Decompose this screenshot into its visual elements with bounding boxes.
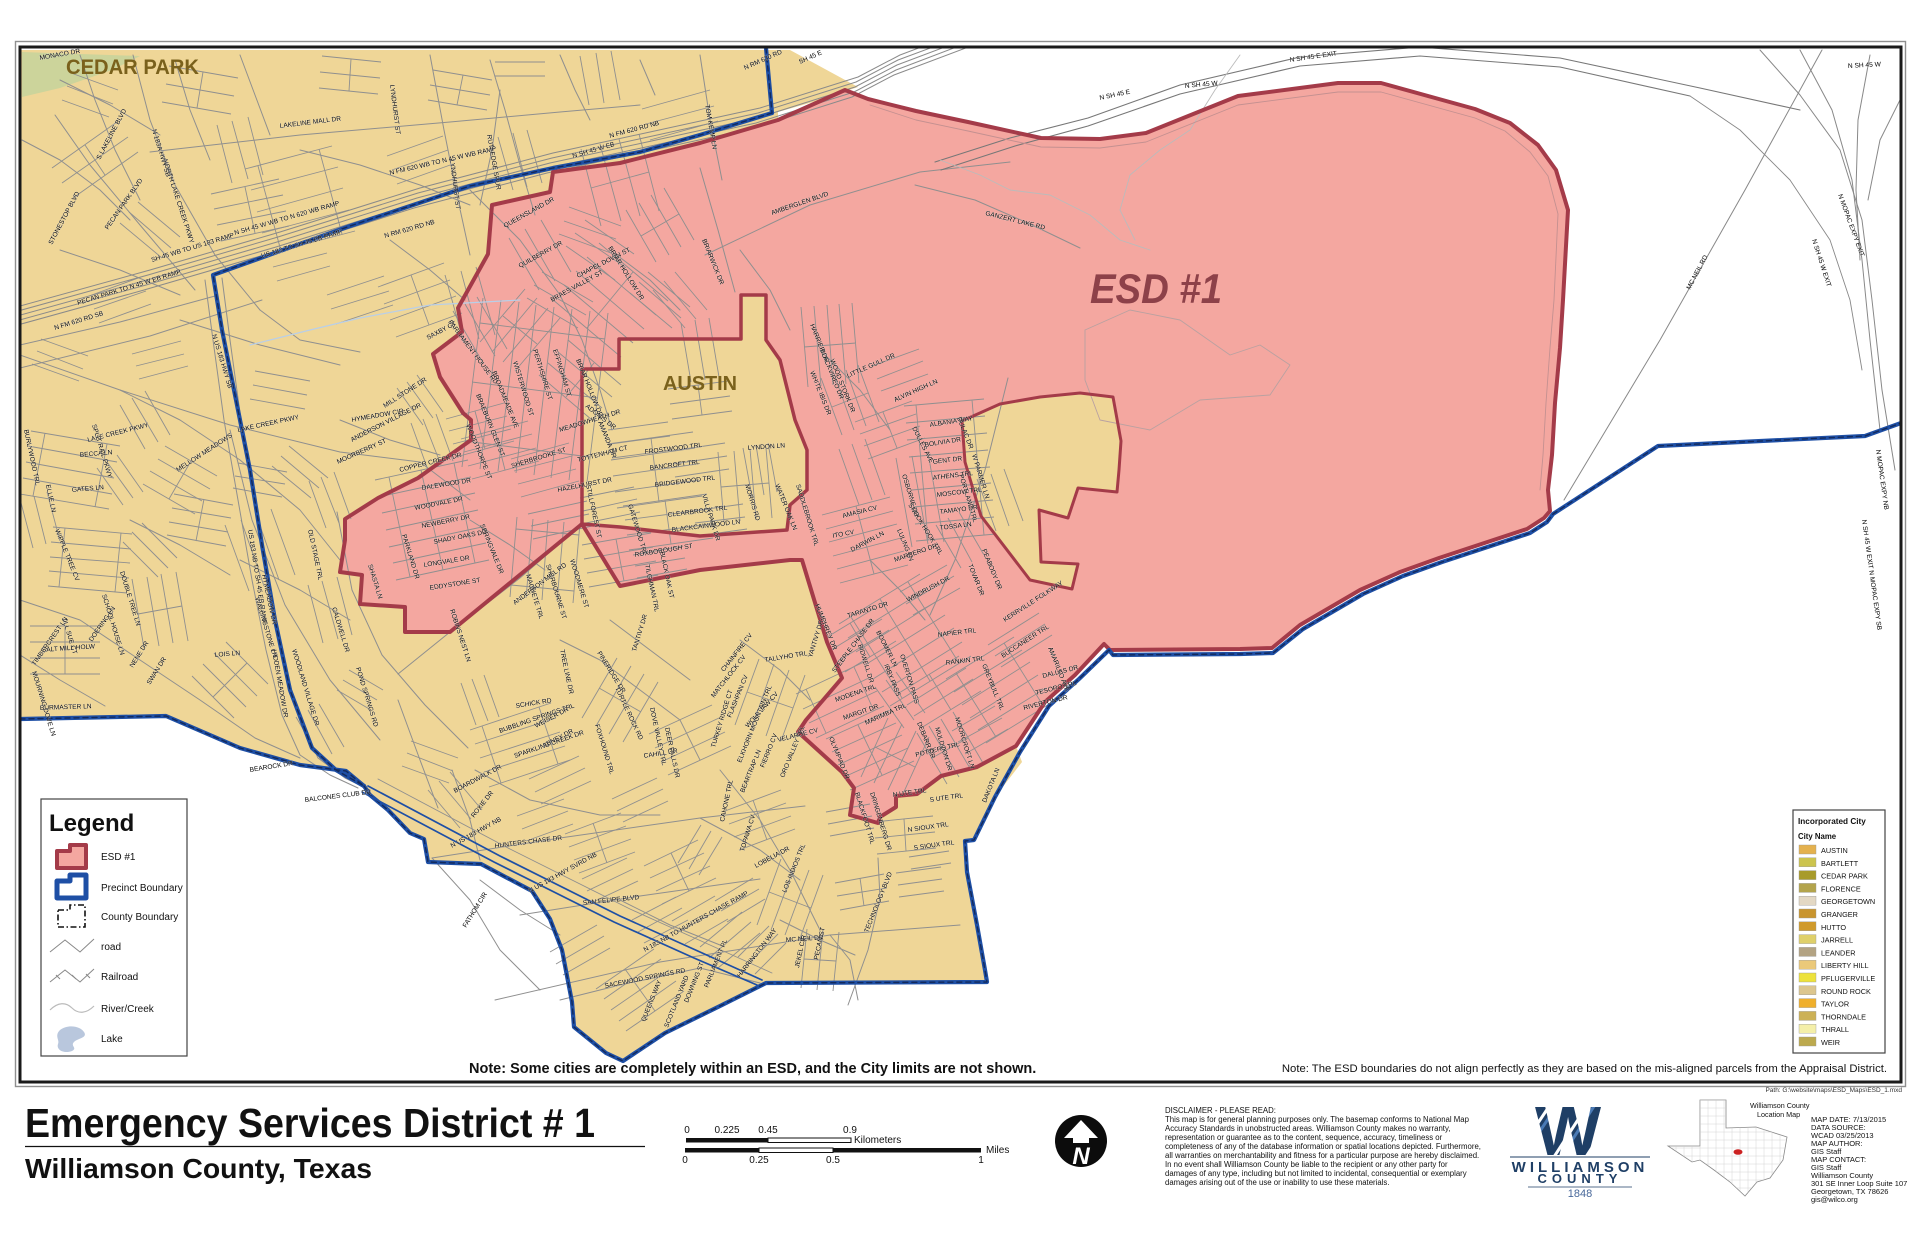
svg-text:HUTTO: HUTTO: [1821, 923, 1846, 932]
svg-text:WEIR: WEIR: [1821, 1038, 1840, 1047]
svg-text:THRALL: THRALL: [1821, 1025, 1849, 1034]
svg-text:gis@wilco.org: gis@wilco.org: [1811, 1195, 1858, 1204]
svg-text:LEANDER: LEANDER: [1821, 948, 1855, 957]
svg-text:Location Map: Location Map: [1757, 1110, 1800, 1119]
svg-text:1848: 1848: [1568, 1188, 1592, 1200]
svg-text:COUNTY: COUNTY: [1538, 1171, 1623, 1186]
svg-text:ESD #1: ESD #1: [1090, 265, 1222, 312]
svg-text:Precinct Boundary: Precinct Boundary: [101, 883, 183, 894]
svg-text:County Boundary: County Boundary: [101, 912, 178, 923]
svg-text:0.25: 0.25: [749, 1155, 769, 1166]
svg-text:Williamson County, Texas: Williamson County, Texas: [25, 1153, 372, 1184]
svg-text:Incorporated City: Incorporated City: [1798, 817, 1866, 826]
svg-text:road: road: [101, 942, 121, 953]
svg-text:Accuracy Standards in unobstru: Accuracy Standards in unobstructed areas…: [1165, 1124, 1450, 1133]
svg-text:Kilometers: Kilometers: [854, 1135, 901, 1146]
svg-text:0.45: 0.45: [758, 1125, 778, 1136]
svg-text:damages of any type, including: damages of any type, including but not l…: [1165, 1169, 1467, 1178]
svg-text:TAYLOR: TAYLOR: [1821, 1000, 1849, 1009]
svg-text:AUSTIN: AUSTIN: [1821, 846, 1848, 855]
svg-text:Path: G:\website\maps\ESD_Maps: Path: G:\website\maps\ESD_Maps\ESD_1.mxd: [1765, 1087, 1902, 1094]
svg-text:ROUND ROCK: ROUND ROCK: [1821, 987, 1871, 996]
svg-text:In no event shall Williamson C: In no event shall Williamson County be l…: [1165, 1160, 1448, 1169]
svg-text:0: 0: [682, 1155, 688, 1166]
svg-text:Williamson County: Williamson County: [1750, 1101, 1810, 1110]
svg-text:all warranties on merchantabil: all warranties on merchantability and fi…: [1165, 1151, 1479, 1160]
svg-text:Note: Some cities are complete: Note: Some cities are completely within …: [469, 1061, 1036, 1077]
svg-text:River/Creek: River/Creek: [101, 1004, 155, 1015]
svg-text:representation or guarantee as: representation or guarantee as to the co…: [1165, 1133, 1443, 1142]
svg-text:CEDAR PARK: CEDAR PARK: [1821, 872, 1868, 881]
svg-text:damages arising out of the use: damages arising out of the use or inabil…: [1165, 1178, 1390, 1187]
svg-text:JARRELL: JARRELL: [1821, 936, 1853, 945]
svg-text:ESD #1: ESD #1: [101, 852, 136, 863]
svg-text:Railroad: Railroad: [101, 972, 138, 983]
svg-text:completeness of any of the dat: completeness of any of the database info…: [1165, 1142, 1481, 1151]
svg-text:FLORENCE: FLORENCE: [1821, 884, 1861, 893]
svg-text:This map is for general planni: This map is for general planning purpose…: [1165, 1115, 1470, 1124]
svg-text:CEDAR PARK: CEDAR PARK: [66, 56, 199, 79]
svg-text:0.5: 0.5: [826, 1155, 840, 1166]
svg-text:N: N: [1072, 1143, 1090, 1170]
svg-text:GRANGER: GRANGER: [1821, 910, 1858, 919]
svg-text:Emergency Services District #: Emergency Services District # 1: [25, 1100, 595, 1146]
svg-text:AUSTIN: AUSTIN: [663, 373, 737, 395]
svg-text:0: 0: [684, 1125, 690, 1136]
svg-text:THORNDALE: THORNDALE: [1821, 1012, 1866, 1021]
svg-text:LIBERTY HILL: LIBERTY HILL: [1821, 961, 1869, 970]
svg-text:Legend: Legend: [49, 810, 134, 837]
svg-text:City Name: City Name: [1798, 832, 1837, 841]
svg-text:1: 1: [978, 1155, 984, 1166]
svg-text:PFLUGERVILLE: PFLUGERVILLE: [1821, 974, 1875, 983]
svg-text:DISCLAIMER - PLEASE READ:: DISCLAIMER - PLEASE READ:: [1165, 1106, 1276, 1115]
svg-text:GEORGETOWN: GEORGETOWN: [1821, 897, 1875, 906]
svg-text:BARTLETT: BARTLETT: [1821, 859, 1859, 868]
svg-text:0.225: 0.225: [714, 1125, 739, 1136]
svg-text:Note: The ESD boundaries do no: Note: The ESD boundaries do not align pe…: [1282, 1063, 1887, 1075]
svg-text:Lake: Lake: [101, 1034, 123, 1045]
svg-text:Miles: Miles: [986, 1145, 1009, 1156]
